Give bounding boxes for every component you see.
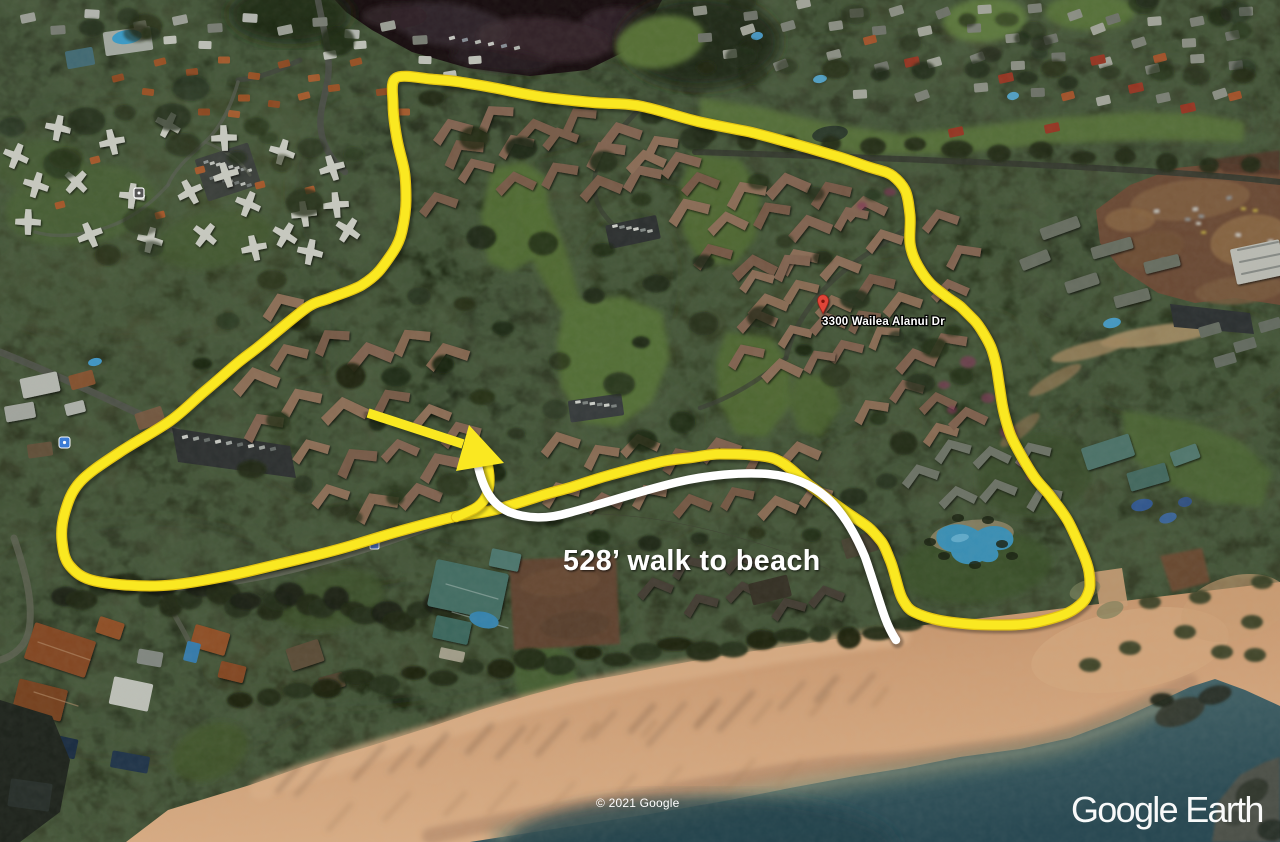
svg-text:© 2021 Google: © 2021 Google [596, 796, 680, 810]
svg-text:528’ walk to beach: 528’ walk to beach [563, 545, 821, 577]
svg-text:Google Earth: Google Earth [1071, 789, 1263, 830]
svg-text:3300 Wailea Alanui Dr: 3300 Wailea Alanui Dr [822, 316, 945, 328]
